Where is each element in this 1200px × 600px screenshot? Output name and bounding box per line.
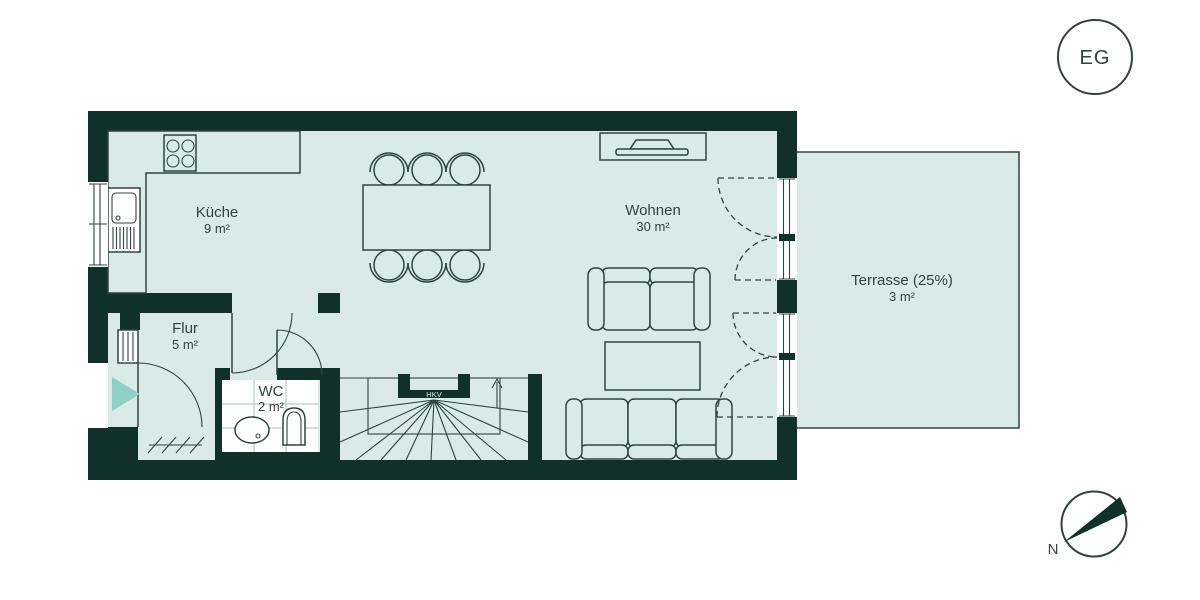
entrance-corner-block bbox=[88, 427, 138, 480]
window-mullion bbox=[779, 234, 795, 241]
duct-block bbox=[120, 313, 140, 330]
room-area: 5 m² bbox=[172, 337, 199, 352]
floor-badge: EG bbox=[1058, 20, 1132, 94]
sofa-2seat bbox=[588, 268, 710, 330]
wc-left-wall bbox=[215, 368, 222, 460]
wc-bottom-wall bbox=[222, 452, 320, 462]
room-name: Wohnen bbox=[625, 202, 681, 219]
terrace-door-upper bbox=[777, 178, 797, 280]
room-name: WC bbox=[259, 383, 284, 400]
tv-sideboard bbox=[600, 133, 706, 160]
chair bbox=[370, 153, 484, 185]
room-area: 3 m² bbox=[889, 289, 916, 304]
window-mullion bbox=[779, 353, 795, 360]
partition-kitchen-hall-right bbox=[318, 293, 340, 313]
room-name: Terrasse (25%) bbox=[851, 272, 953, 289]
room-label-wc: WC 2 m² bbox=[258, 383, 285, 414]
room-area: 2 m² bbox=[258, 399, 285, 414]
entrance-opening bbox=[88, 363, 108, 428]
chair bbox=[370, 250, 484, 282]
stove bbox=[164, 135, 196, 171]
compass-icon: N bbox=[1048, 492, 1127, 559]
coffee-table bbox=[605, 342, 700, 390]
hkv-label: HKV bbox=[426, 390, 441, 399]
floor-badge-label: EG bbox=[1080, 47, 1111, 69]
sofa-3seat bbox=[566, 399, 732, 459]
dining-table bbox=[363, 185, 490, 250]
room-name: Küche bbox=[196, 204, 239, 221]
room-area: 9 m² bbox=[204, 221, 231, 236]
partition-kitchen-hall-left bbox=[88, 293, 232, 313]
stair-right-wall bbox=[528, 374, 542, 460]
room-label-flur: Flur 5 m² bbox=[172, 320, 199, 352]
toilet bbox=[283, 408, 305, 445]
floor-plan-page: HKV bbox=[0, 0, 1200, 600]
kitchen-window bbox=[88, 182, 108, 267]
floor-plan: HKV bbox=[0, 0, 1200, 600]
kitchen-sink bbox=[108, 188, 140, 252]
compass-label: N bbox=[1048, 541, 1059, 558]
room-name: Flur bbox=[172, 320, 198, 337]
wc-sink bbox=[235, 417, 269, 443]
room-area: 30 m² bbox=[636, 219, 670, 234]
terrace-door-lower bbox=[777, 313, 797, 417]
wc-top-wall-right bbox=[277, 368, 320, 380]
wc-stair-wall bbox=[320, 368, 340, 460]
dining-set bbox=[363, 153, 490, 282]
